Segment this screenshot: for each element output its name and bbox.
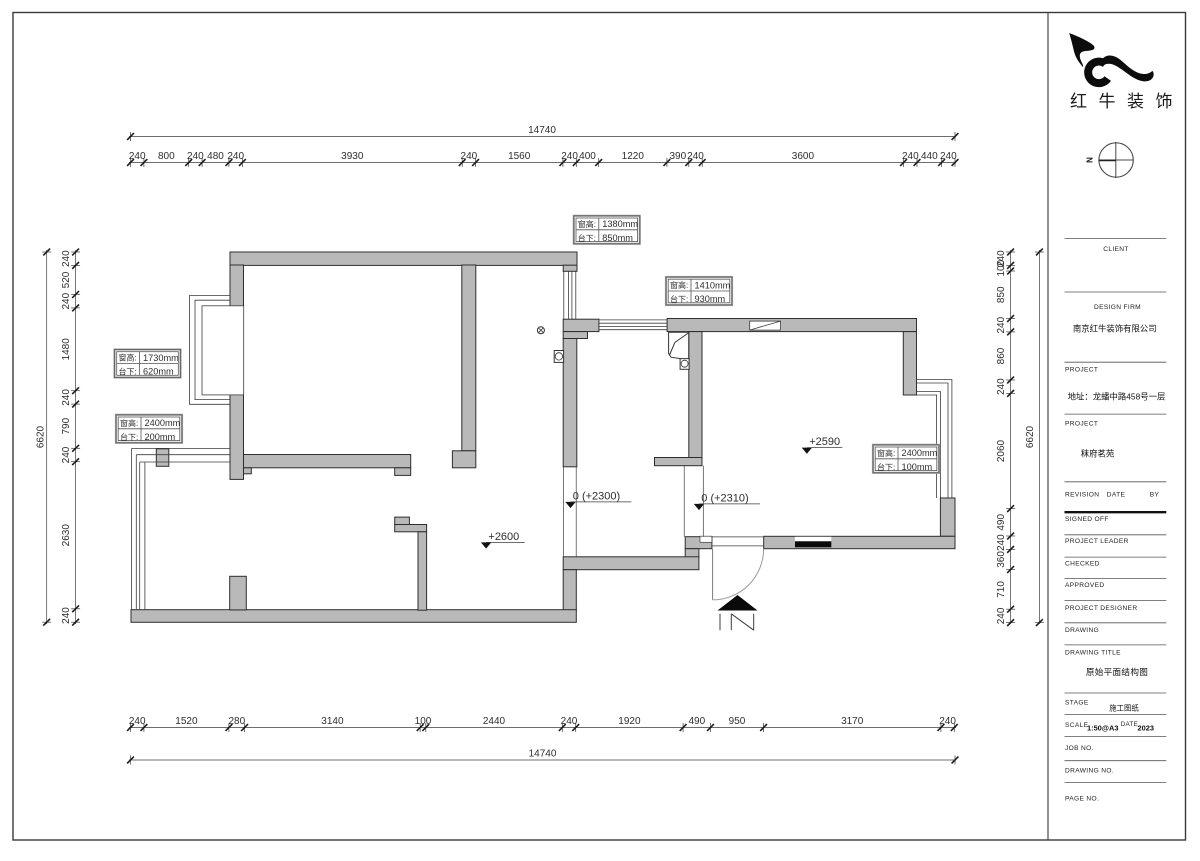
svg-text:240: 240 — [61, 446, 72, 463]
svg-text:490: 490 — [996, 514, 1007, 531]
svg-text:860: 860 — [996, 347, 1007, 364]
svg-text:2023: 2023 — [1138, 724, 1154, 733]
svg-text:地址：龙蟠中路458号一层: 地址：龙蟠中路458号一层 — [1068, 392, 1166, 402]
svg-text:520: 520 — [61, 271, 72, 288]
svg-text:240: 240 — [561, 151, 578, 162]
svg-text:PROJECT: PROJECT — [1065, 367, 1098, 374]
svg-text:360: 360 — [996, 551, 1007, 568]
svg-text:280: 280 — [228, 716, 245, 727]
svg-text:DRAWING NO.: DRAWING NO. — [1065, 768, 1114, 775]
svg-text:窗高:: 窗高: — [877, 448, 895, 458]
svg-text:3140: 3140 — [321, 716, 344, 727]
svg-text:DATE: DATE — [1121, 721, 1138, 728]
svg-text:REVISION: REVISION — [1065, 492, 1099, 499]
svg-text:2400mm: 2400mm — [902, 448, 938, 458]
svg-text:240: 240 — [561, 716, 578, 727]
svg-text:3930: 3930 — [341, 151, 364, 162]
svg-text:1:50@A3: 1:50@A3 — [1087, 724, 1118, 733]
svg-text:DRAWING: DRAWING — [1065, 627, 1099, 634]
svg-text:原始平面结构图: 原始平面结构图 — [1086, 666, 1148, 677]
svg-text:1220: 1220 — [622, 151, 645, 162]
svg-text:240: 240 — [61, 250, 72, 267]
svg-text:390: 390 — [669, 151, 686, 162]
svg-text:2400mm: 2400mm — [145, 418, 181, 428]
svg-text:3600: 3600 — [792, 151, 815, 162]
svg-text:200mm: 200mm — [145, 432, 176, 442]
svg-text:850mm: 850mm — [602, 233, 633, 243]
svg-text:1380mm: 1380mm — [602, 219, 638, 229]
svg-text:240: 240 — [996, 607, 1007, 624]
svg-text:0 (+2300): 0 (+2300) — [573, 490, 620, 502]
svg-text:850: 850 — [996, 286, 1007, 303]
svg-text:窗高:: 窗高: — [119, 353, 137, 363]
svg-text:台下:: 台下: — [120, 432, 138, 442]
svg-text:240: 240 — [902, 151, 919, 162]
svg-text:DESIGN FIRM: DESIGN FIRM — [1094, 304, 1141, 311]
svg-text:440: 440 — [921, 151, 938, 162]
svg-text:14740: 14740 — [528, 125, 556, 136]
svg-text:1520: 1520 — [175, 716, 198, 727]
svg-text:240: 240 — [129, 151, 146, 162]
svg-text:1730mm: 1730mm — [143, 353, 179, 363]
svg-text:2440: 2440 — [483, 716, 506, 727]
svg-text:240: 240 — [939, 716, 956, 727]
svg-text:6620: 6620 — [1025, 425, 1036, 448]
svg-text:800: 800 — [158, 151, 175, 162]
svg-text:APPROVED: APPROVED — [1065, 582, 1104, 589]
svg-text:CLIENT: CLIENT — [1103, 246, 1129, 253]
svg-text:窗高:: 窗高: — [670, 280, 688, 290]
svg-text:1920: 1920 — [618, 716, 641, 727]
svg-text:2630: 2630 — [61, 524, 72, 547]
svg-text:CHECKED: CHECKED — [1065, 561, 1100, 568]
svg-text:3170: 3170 — [841, 716, 864, 727]
svg-text:240: 240 — [996, 316, 1007, 333]
svg-text:240: 240 — [996, 534, 1007, 551]
svg-text:PROJECT: PROJECT — [1065, 421, 1098, 428]
svg-text:240: 240 — [187, 151, 204, 162]
svg-text:14740: 14740 — [529, 749, 557, 760]
svg-text:1410mm: 1410mm — [695, 280, 731, 290]
svg-text:台下:: 台下: — [877, 462, 895, 472]
svg-text:1560: 1560 — [508, 151, 531, 162]
svg-text:SCALE: SCALE — [1065, 722, 1089, 729]
svg-text:240: 240 — [996, 378, 1007, 395]
svg-text:950: 950 — [729, 716, 746, 727]
svg-text:秣府茗苑: 秣府茗苑 — [1081, 449, 1115, 459]
svg-text:2060: 2060 — [996, 439, 1007, 462]
svg-text:240: 240 — [61, 292, 72, 309]
svg-text:DATE: DATE — [1107, 492, 1126, 499]
svg-text:710: 710 — [996, 581, 1007, 598]
svg-text:240: 240 — [61, 389, 72, 406]
svg-text:JOB NO.: JOB NO. — [1065, 745, 1094, 752]
svg-text:790: 790 — [61, 417, 72, 434]
svg-text:240: 240 — [687, 151, 704, 162]
svg-text:240: 240 — [129, 716, 146, 727]
svg-text:620mm: 620mm — [143, 367, 174, 377]
svg-text:930mm: 930mm — [695, 294, 726, 304]
svg-text:490: 490 — [688, 716, 705, 727]
svg-text:台下:: 台下: — [119, 367, 137, 377]
svg-text:+2600: +2600 — [488, 531, 519, 543]
svg-text:南京红牛装饰有限公司: 南京红牛装饰有限公司 — [1073, 324, 1157, 334]
svg-text:施工图纸: 施工图纸 — [1109, 704, 1139, 713]
svg-text:SIGNED OFF: SIGNED OFF — [1065, 516, 1109, 523]
svg-text:240: 240 — [461, 151, 478, 162]
svg-text:PROJECT LEADER: PROJECT LEADER — [1065, 538, 1129, 545]
svg-text:240: 240 — [61, 607, 72, 624]
svg-text:+2590: +2590 — [809, 436, 840, 448]
svg-text:0 (+2310): 0 (+2310) — [701, 492, 748, 504]
svg-text:100: 100 — [996, 259, 1007, 276]
svg-text:1480: 1480 — [61, 338, 72, 361]
svg-text:窗高:: 窗高: — [578, 219, 596, 229]
svg-text:N: N — [1086, 157, 1095, 163]
svg-text:100mm: 100mm — [902, 462, 933, 472]
svg-text:BY: BY — [1150, 492, 1160, 499]
svg-text:台下:: 台下: — [670, 294, 688, 304]
svg-text:窗高:: 窗高: — [120, 418, 138, 428]
svg-text:6620: 6620 — [36, 425, 47, 448]
svg-text:台下:: 台下: — [578, 233, 596, 243]
svg-text:PAGE NO.: PAGE NO. — [1065, 795, 1099, 802]
svg-text:STAGE: STAGE — [1065, 699, 1089, 706]
svg-text:400: 400 — [579, 151, 596, 162]
svg-text:红牛装饰: 红牛装饰 — [1070, 92, 1184, 111]
svg-text:240: 240 — [940, 151, 957, 162]
svg-text:480: 480 — [207, 151, 224, 162]
svg-text:100: 100 — [415, 716, 432, 727]
svg-text:PROJECT DESIGNER: PROJECT DESIGNER — [1065, 605, 1138, 612]
svg-text:240: 240 — [227, 151, 244, 162]
svg-text:DRAWING TITLE: DRAWING TITLE — [1065, 649, 1121, 656]
